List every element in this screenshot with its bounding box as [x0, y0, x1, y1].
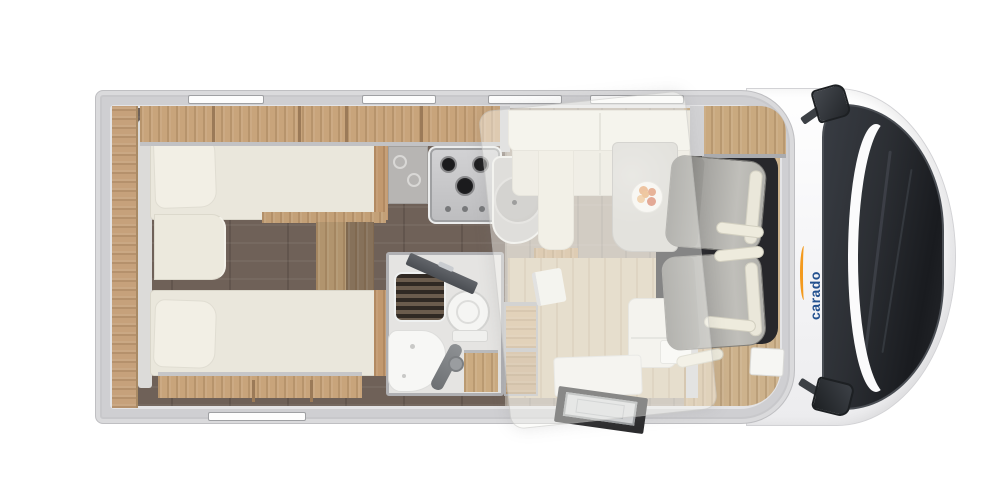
- hob-knob: [462, 206, 468, 212]
- side-mirror-top-icon: [798, 86, 852, 136]
- windshield-highlight: [848, 124, 904, 392]
- window-slot: [188, 95, 264, 104]
- pillow: [153, 135, 217, 209]
- pillow: [153, 299, 217, 369]
- rear-shelf: [112, 106, 138, 408]
- window-slot: [488, 95, 562, 104]
- floor-step: [316, 222, 346, 290]
- drop-down-bed-overlay: [478, 90, 718, 430]
- toilet-tank: [452, 330, 488, 342]
- burner-icon: [455, 176, 475, 196]
- floor-step: [346, 222, 374, 290]
- cab-wood-box: [749, 347, 784, 377]
- wall-pillar: [690, 106, 704, 156]
- cab-overhead-cabinet: [702, 106, 786, 158]
- floorplan-canvas: carado: [0, 0, 1000, 500]
- vanity-cabinet: [464, 350, 498, 392]
- glass-rack: [388, 146, 428, 204]
- wine-glass-icon: [393, 155, 407, 169]
- cabinet-divider: [310, 380, 313, 402]
- hob-knob: [445, 206, 451, 212]
- basin-drain-icon: [410, 344, 415, 349]
- wine-glass-icon: [407, 173, 421, 187]
- window-slot: [208, 412, 306, 421]
- brand-logo: carado: [800, 226, 824, 322]
- overhead-cabinets-bottom: [158, 372, 362, 398]
- shower-mixer-hub: [448, 356, 464, 372]
- burner-icon: [440, 156, 457, 173]
- cabinet-divider: [212, 106, 215, 142]
- logo-text: carado: [808, 228, 822, 320]
- basin-dot-icon: [402, 374, 406, 378]
- center-cushion: [154, 214, 226, 280]
- overhead-cabinets-top: [140, 106, 500, 146]
- cabinet-divider: [420, 106, 423, 142]
- side-mirror-bottom-icon: [796, 366, 854, 418]
- cabinet-divider: [345, 106, 348, 142]
- cabinet-divider: [252, 380, 255, 402]
- toilet-seat-ring: [456, 300, 480, 324]
- cabinet-divider: [298, 106, 301, 142]
- hob-knob: [479, 206, 485, 212]
- window-slot: [362, 95, 436, 104]
